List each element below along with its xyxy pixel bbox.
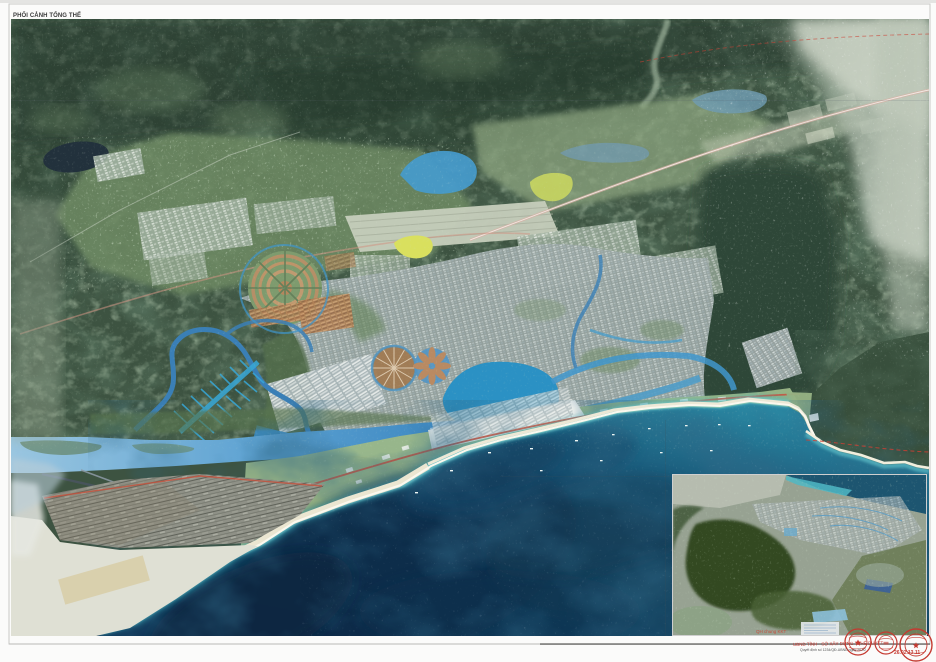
svg-text:QH chung KKT: QH chung KKT [756,629,787,634]
svg-text:Quyết định số 1234/QĐ-UBND ngà: Quyết định số 1234/QĐ-UBND ngày 26.02 [800,648,866,652]
svg-text:PHỐI CẢNH TỔNG THỂ: PHỐI CẢNH TỔNG THỂ [13,12,81,19]
svg-text:26.02.13.11: 26.02.13.11 [894,650,920,656]
